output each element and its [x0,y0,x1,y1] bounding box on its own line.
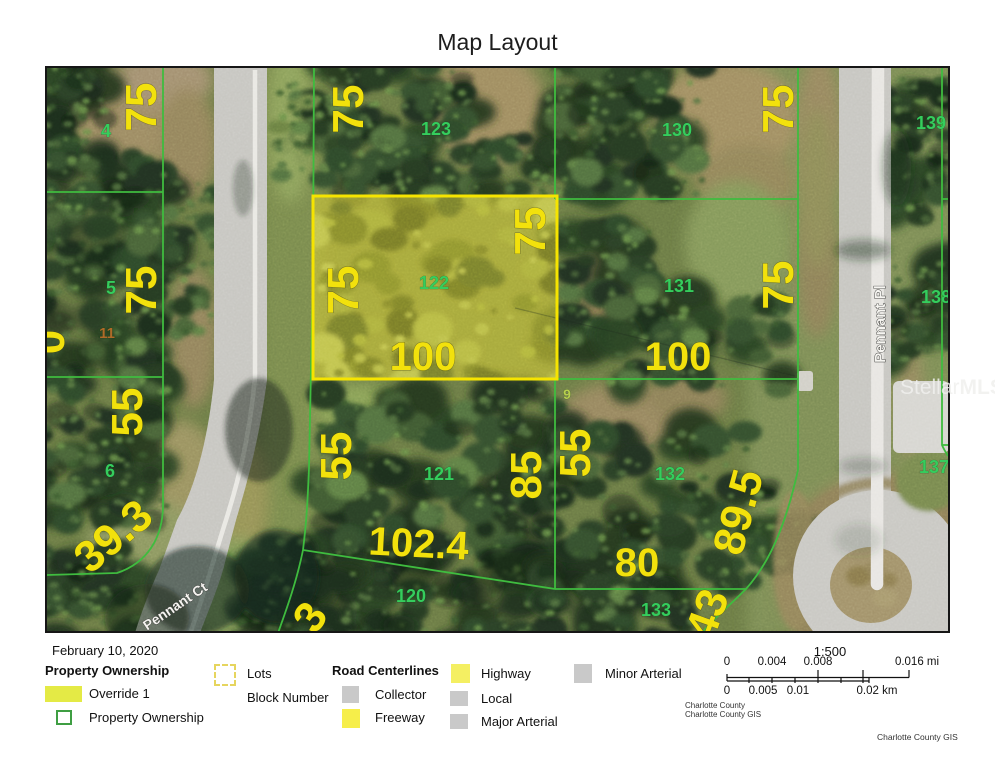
svg-text:85: 85 [502,451,551,500]
svg-text:0: 0 [724,685,730,697]
svg-text:80: 80 [615,541,660,585]
svg-text:0: 0 [47,330,74,354]
svg-text:131: 131 [664,276,694,296]
svg-text:75: 75 [117,266,166,315]
svg-text:132: 132 [655,464,685,484]
svg-text:130: 130 [662,120,692,140]
svg-text:0.005: 0.005 [749,685,778,697]
svg-text:Pennant Pl: Pennant Pl [872,285,889,363]
svg-text:75: 75 [506,207,555,256]
svg-text:0: 0 [724,656,730,668]
svg-text:75: 75 [754,261,803,310]
svg-text:75: 75 [324,85,373,134]
svg-text:75: 75 [754,85,803,134]
svg-text:120: 120 [396,586,426,606]
svg-text:100: 100 [645,335,712,379]
svg-text:5: 5 [106,278,116,298]
svg-text:138: 138 [921,287,948,307]
svg-text:9: 9 [563,386,571,402]
svg-text:6: 6 [105,461,115,481]
svg-text:0.01: 0.01 [787,685,809,697]
svg-text:55: 55 [312,432,361,481]
svg-text:123: 123 [421,119,451,139]
svg-text:55: 55 [103,388,152,437]
svg-text:0.004: 0.004 [758,656,787,668]
svg-text:100: 100 [390,335,457,379]
svg-text:55: 55 [551,429,600,478]
svg-text:102.4: 102.4 [368,519,471,568]
svg-text:122: 122 [419,273,449,293]
svg-text:0.008: 0.008 [804,656,833,668]
svg-text:139: 139 [916,113,946,133]
svg-text:0.02 km: 0.02 km [857,685,898,697]
svg-text:121: 121 [424,464,454,484]
svg-text:0.016 mi: 0.016 mi [895,656,939,668]
svg-text:133: 133 [641,600,671,620]
svg-text:75: 75 [319,266,368,315]
svg-text:4: 4 [101,121,111,141]
svg-text:75: 75 [117,83,166,132]
svg-text:11: 11 [99,325,115,342]
svg-text:137: 137 [919,457,948,477]
